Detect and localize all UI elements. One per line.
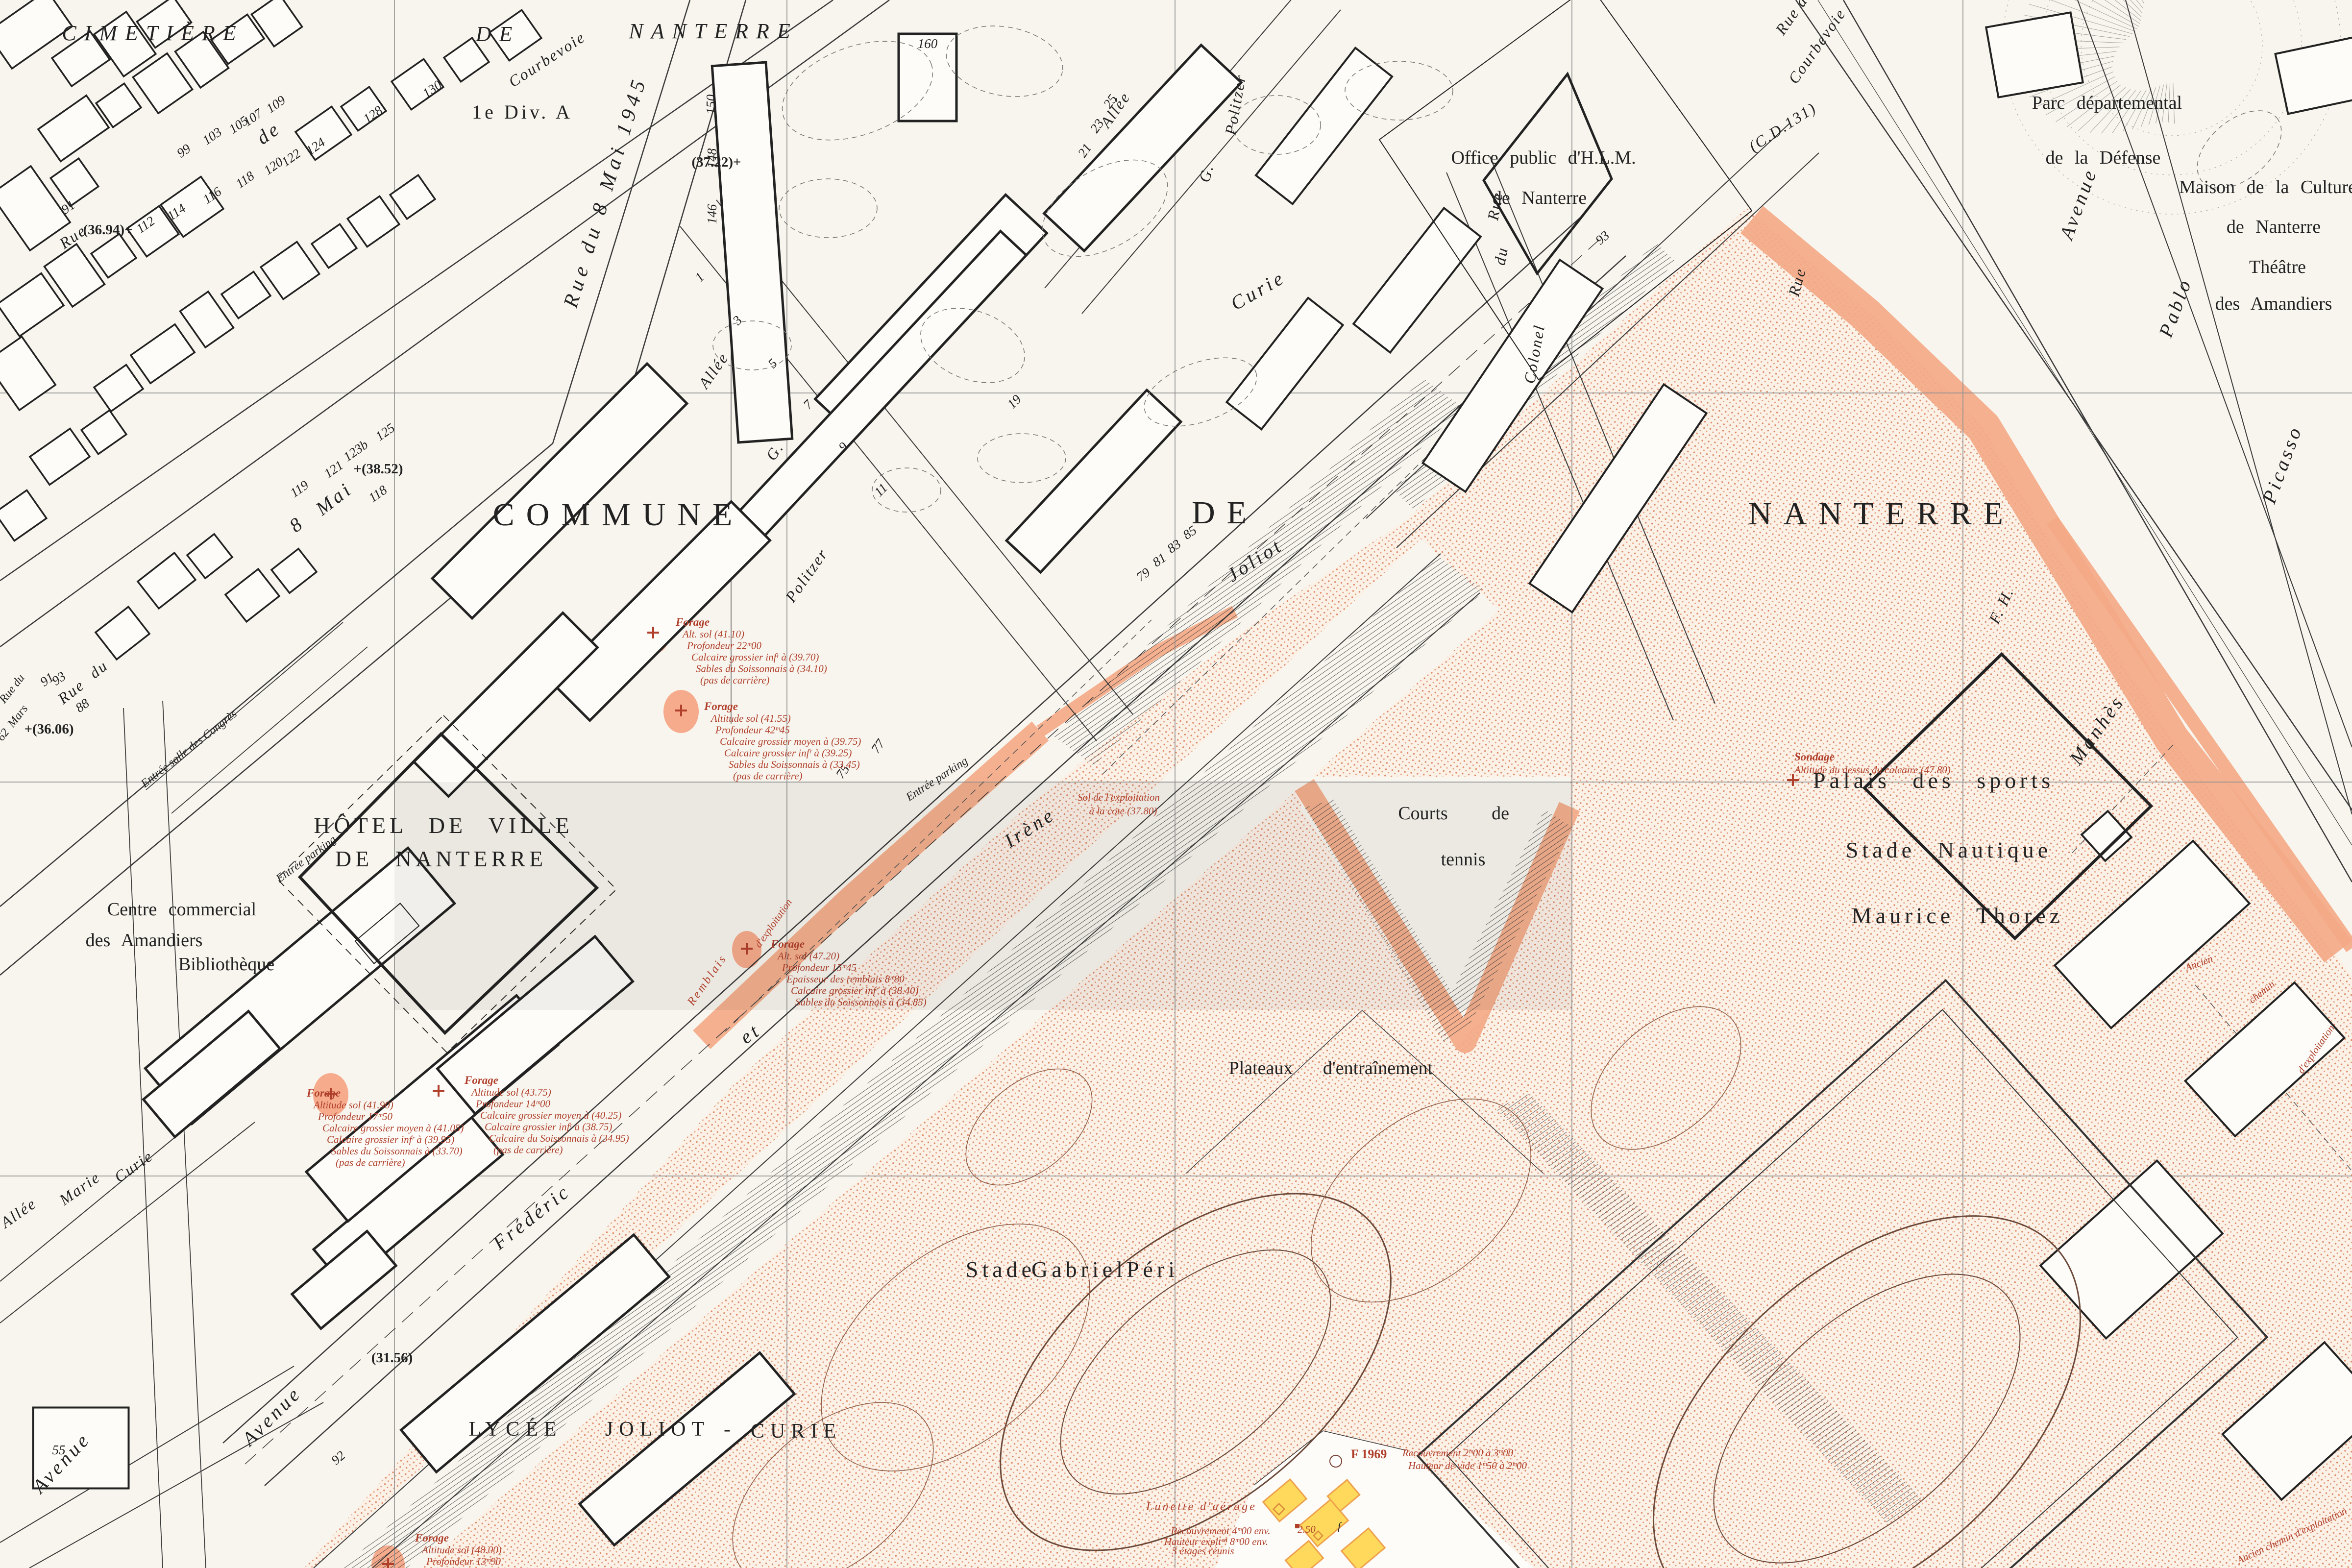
label-dash: - xyxy=(724,1418,736,1441)
elevation-31-56: (31.56) xyxy=(371,1350,413,1366)
f1969-line-2: Hauteur de vide 1ᵐ50 à 2ᵐ00 xyxy=(1408,1460,1527,1471)
forage-line: Altitude sol (41.55) xyxy=(710,712,791,724)
forage-line: Sables du Soissonnais à (33.70) xyxy=(331,1145,463,1157)
label-theatre-1: Théâtre xyxy=(2249,257,2306,277)
forage-line: Altitude sol (43.75) xyxy=(470,1086,551,1098)
forage-title: Forage xyxy=(464,1074,498,1086)
label-office-hlm-1: Office public d'H.L.M. xyxy=(1451,147,1636,168)
forage-line: Calcaire grossier infʳ à (39.70) xyxy=(691,651,819,663)
forage-line: Profondeur 22ᵐ00 xyxy=(686,640,762,652)
forage-title: Forage xyxy=(306,1087,341,1099)
forage-line: (pas de carrière) xyxy=(493,1144,563,1156)
label-plateaux-1: Plateaux xyxy=(1229,1058,1293,1078)
sol-exploitation-2: à la cote (37.80) xyxy=(1089,805,1157,817)
sondage-line: Altitude du dessus du calcaire (47.80) xyxy=(1793,764,1951,776)
sol-exploitation-1: Sol de l'exploitation xyxy=(1078,791,1160,803)
forage-line: (pas de carrière) xyxy=(733,770,803,782)
building xyxy=(1986,12,2083,97)
recouvrement-1: Recouvrement 4ᵐ00 env. xyxy=(1171,1525,1271,1537)
label-de-mid: DE xyxy=(1192,495,1258,531)
forage-line: Profondeur 13ᵐ90 xyxy=(426,1556,501,1568)
parcel-number: 146 xyxy=(705,204,719,224)
label-stade-nautique-2: Maurice Thorez xyxy=(1852,903,2063,928)
label-division: 1e Div. A xyxy=(472,101,573,123)
parcel-number: 150 xyxy=(704,94,718,114)
shaft-circle xyxy=(1330,1455,1342,1467)
forage-line: Profondeur 17ᵐ50 xyxy=(318,1111,393,1123)
forage-line: Altitude sol (41.90) xyxy=(313,1099,393,1111)
parcel-number: 160 xyxy=(918,36,938,51)
forage-line: (pas de carrière) xyxy=(336,1157,405,1169)
elevation-37-22: (37.22)+ xyxy=(691,154,741,170)
lunette-aerage: Lunette d'aérage xyxy=(1146,1500,1257,1513)
forage-line: (pas de carrière) xyxy=(700,674,770,686)
label-lycee: LYCÉE xyxy=(468,1418,562,1441)
forage-line: Calcaire grossier infʳ à (39.95) xyxy=(327,1134,454,1146)
label-cimetiere: CIMETIÈRE xyxy=(62,21,244,45)
elevation-38-52: +(38.52) xyxy=(353,461,403,477)
label-maison-culture-2: de Nanterre xyxy=(2227,217,2321,237)
forage-line: Calcaire grossier moyen à (39.75) xyxy=(720,735,861,747)
label-nanterre-top: NANTERRE xyxy=(628,19,798,43)
label-stade-1: Stade xyxy=(966,1257,1035,1282)
street-rue-colonel-2: du xyxy=(1491,245,1511,267)
label-hotel-de-ville-1: HÔTEL DE VILLE xyxy=(314,813,573,838)
label-maison-culture-1: Maison de la Culture xyxy=(2179,177,2352,197)
forage-line: Sables du Soissonnais à (34.10) xyxy=(696,663,827,675)
forage-line: Calcaire grossier moyen à (40.25) xyxy=(480,1109,621,1121)
label-courts-3: tennis xyxy=(1441,849,1486,870)
forage-line: Altitude sol (48.00) xyxy=(421,1544,502,1556)
label-bibliotheque: Bibliothèque xyxy=(178,954,274,975)
label-courts-2: de xyxy=(1492,803,1509,824)
label-office-hlm-2: de Nanterre xyxy=(1493,188,1587,208)
sondage-title: Sondage xyxy=(1794,751,1835,763)
f1969-line-1: Recouvrement 2ᵐ00 à 3ᵐ00 xyxy=(1402,1447,1514,1459)
forage-line: Calcaire du Soissonnais à (34.95) xyxy=(489,1132,629,1144)
label-courts-1: Courts xyxy=(1398,803,1447,824)
forage-line: Profondeur 42ᵐ45 xyxy=(715,724,790,736)
label-stade-2: Gabriel xyxy=(1031,1257,1127,1282)
elevation-36-06: +(36.06) xyxy=(24,721,73,737)
label-curie-big: CURIE xyxy=(751,1420,842,1443)
label-nanterre-mid: NANTERRE xyxy=(1748,496,2015,532)
label-stade-3: Péri xyxy=(1127,1257,1178,1282)
f1969-label: F 1969 xyxy=(1351,1447,1387,1461)
label-stade-nautique-1: Stade Nautique xyxy=(1846,837,2052,862)
forage-title: Forage xyxy=(675,616,710,628)
forage-line: Alt. sol (41.10) xyxy=(682,628,744,640)
forage-line: Calcaire grossier infʳ à (38.75) xyxy=(485,1121,612,1133)
forage-title: Forage xyxy=(704,700,738,712)
plan-nanterre-svg: 9199103105107109112114116118120122124128… xyxy=(0,0,2352,1568)
forage-line: Sables du Soissonnais à (33.45) xyxy=(729,759,860,770)
label-hotel-de-ville-2: DE NANTERRE xyxy=(335,846,547,871)
map-canvas: 9199103105107109112114116118120122124128… xyxy=(0,0,2352,1568)
label-plateaux-2: d'entraînement xyxy=(1323,1058,1433,1078)
label-centre-commercial-1: Centre commercial xyxy=(107,899,256,920)
forage-line: Calcaire grossier moyen à (41.05) xyxy=(322,1122,464,1134)
label-joliot-big: JOLIOT xyxy=(605,1418,710,1441)
forage-line: Profondeur 14ᵐ00 xyxy=(475,1098,551,1110)
label-de-top: DE xyxy=(475,22,520,46)
label-parc-1: Parc départemental xyxy=(2032,93,2182,113)
label-centre-commercial-2: des Amandiers xyxy=(86,930,203,951)
note-2-50: 2.50 xyxy=(1298,1523,1316,1535)
label-theatre-2: des Amandiers xyxy=(2215,294,2332,314)
forage-title: Forage xyxy=(415,1532,449,1544)
label-commune: COMMUNE xyxy=(493,497,744,533)
label-parc-2: de la Défense xyxy=(2046,147,2161,168)
forage-line: Calcaire grossier infʳ à (39.25) xyxy=(724,747,852,759)
elevation-36-94: (36.94)+ xyxy=(83,222,132,238)
recouvrement-3: 3 étages réunis xyxy=(1171,1545,1234,1557)
